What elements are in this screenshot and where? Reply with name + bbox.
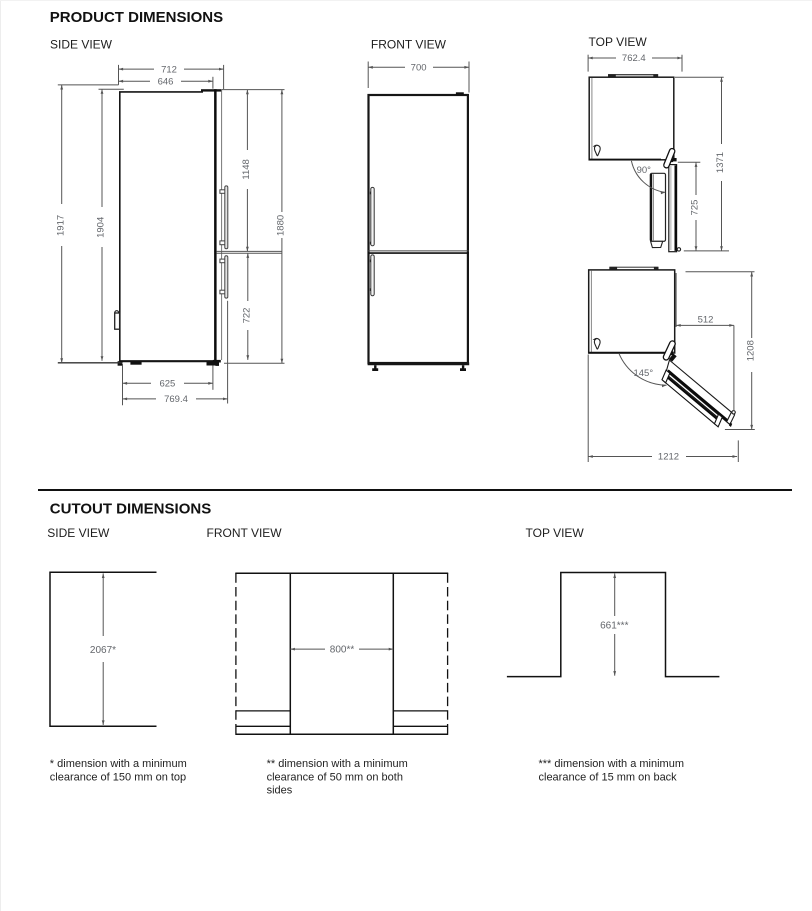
svg-text:2067*: 2067* [90,645,116,656]
svg-text:clearance of 150 mm on top: clearance of 150 mm on top [50,771,186,783]
svg-text:* dimension with a minimum: * dimension with a minimum [50,758,187,770]
svg-text:*** dimension with a minimum: *** dimension with a minimum [539,758,685,770]
svg-text:1880: 1880 [276,215,287,236]
svg-text:SIDE VIEW: SIDE VIEW [47,526,110,540]
svg-text:clearance of 50 mm on both: clearance of 50 mm on both [267,771,403,783]
svg-text:725: 725 [690,200,701,216]
svg-text:1148: 1148 [241,159,252,179]
svg-text:1917: 1917 [55,215,66,236]
svg-text:712: 712 [161,64,177,75]
svg-text:FRONT VIEW: FRONT VIEW [371,38,447,52]
svg-text:TOP VIEW: TOP VIEW [589,35,648,49]
svg-text:661***: 661*** [600,620,628,631]
svg-text:sides: sides [267,785,293,797]
svg-text:646: 646 [158,76,174,87]
svg-text:clearance of 15 mm on back: clearance of 15 mm on back [539,771,678,783]
svg-text:625: 625 [159,379,175,390]
svg-text:1208: 1208 [745,340,756,361]
svg-text:SIDE VIEW: SIDE VIEW [50,38,113,52]
svg-text:** dimension with a minimum: ** dimension with a minimum [267,758,408,770]
svg-text:512: 512 [698,315,714,326]
svg-text:1212: 1212 [658,452,679,463]
svg-text:1904: 1904 [96,217,107,238]
svg-text:1371: 1371 [715,152,726,173]
svg-text:CUTOUT DIMENSIONS: CUTOUT DIMENSIONS [50,501,211,518]
svg-text:145°: 145° [633,368,653,379]
svg-text:700: 700 [411,63,427,74]
svg-text:TOP VIEW: TOP VIEW [526,526,585,540]
svg-text:722: 722 [241,308,252,324]
svg-text:PRODUCT DIMENSIONS: PRODUCT DIMENSIONS [50,9,223,26]
svg-text:800**: 800** [330,644,355,655]
svg-text:762.4: 762.4 [622,53,646,64]
svg-text:90°: 90° [637,165,652,176]
svg-text:FRONT VIEW: FRONT VIEW [207,526,283,540]
svg-text:769.4: 769.4 [164,394,188,405]
